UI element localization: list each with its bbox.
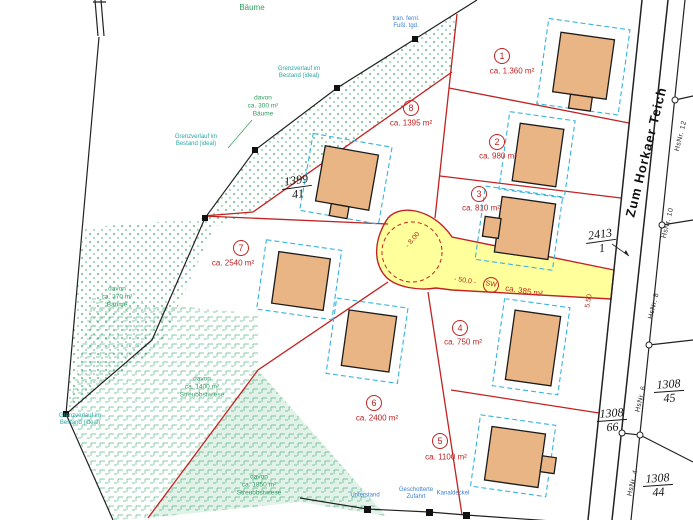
parcel-7-area: ca. 2540 m²: [212, 259, 254, 268]
parcel-2-badge: 2: [489, 134, 505, 150]
house-parcel-7: [257, 240, 342, 320]
trees-area-label-300: davonca. 300 m²Bäume: [248, 94, 279, 117]
building: [341, 310, 396, 372]
parcel-2-area: ca. 980 m²: [479, 152, 517, 161]
survey-note-top: tran. fernl.Fußl. tgd.: [392, 16, 419, 30]
flurstueck-1399-41: 1399 41: [280, 172, 313, 202]
fence-symbol: [93, 0, 106, 36]
building-annex: [569, 94, 593, 111]
gravel-access-label: GeschotterteZufahrt: [399, 487, 433, 501]
boundary-note-2: Grenzverlauf imBestand (ideal): [175, 134, 217, 148]
parcel-4-area: ca. 750 m²: [444, 338, 482, 347]
flurstueck-denominator: 45: [654, 390, 685, 405]
street-edge-right: [612, 0, 668, 520]
house-parcel-6: [326, 298, 408, 383]
flurstueck-denominator: 66: [597, 419, 628, 434]
neighbor-branch-3: [649, 340, 693, 345]
parcel-5-area: ca. 1100 m²: [425, 453, 467, 462]
boundary-point: [637, 432, 643, 438]
trees-label-top: Bäume: [239, 3, 264, 13]
building: [553, 32, 615, 99]
parcel-6-badge: 6: [366, 395, 382, 411]
building-annex: [482, 216, 501, 238]
boundary-marker: [252, 147, 258, 153]
building: [512, 123, 564, 187]
house-parcel-1: [537, 18, 630, 115]
flurstueck-2413-1: 2413 1: [584, 226, 617, 256]
boundary-marker: [364, 506, 371, 513]
boundary-marker: [334, 85, 340, 91]
boundary-note-1: Grenzverlauf imBestand (ideal): [278, 66, 320, 80]
building: [505, 310, 560, 386]
orchard-label-1850: davonca. 1850 m²Streuobstwiese: [237, 473, 281, 496]
neighbor-boundary-line: [631, 0, 685, 520]
parcel-1-badge: 1: [494, 48, 510, 64]
flurstueck-denominator: 44: [643, 484, 674, 499]
site-plan: 1 ca. 1.360 m² 2 ca. 980 m² 3 ca. 810 m²…: [0, 0, 693, 520]
parcel-6-area: ca. 2400 m²: [356, 414, 398, 423]
house-parcel-4: [492, 299, 570, 395]
flurstueck-1308-44: 1308 44: [642, 471, 674, 499]
building: [316, 146, 379, 211]
parcel-4-badge: 4: [452, 320, 468, 336]
parcel-8-area: ca. 1395 m²: [390, 119, 432, 128]
boundary-point: [646, 342, 652, 348]
leader-trees-300: [228, 120, 252, 148]
parcel-3-area: ca. 810 m²: [462, 204, 500, 213]
parcel-8-badge: 8: [403, 100, 419, 116]
building-annex: [329, 204, 349, 219]
trees-area-label-370: davonca. 370 m²Bäume: [102, 285, 133, 308]
parcel-3-badge: 3: [471, 186, 487, 202]
boundary-note-3: Grenzverlauf imBestand (ideal): [59, 413, 101, 427]
neighbor-branch-4: [640, 435, 693, 462]
building: [494, 197, 555, 260]
boundary-marker: [426, 509, 433, 516]
orchard-label-1400: davonca. 1400 m²Streuobstwiese: [180, 375, 224, 398]
boundary-marker: [463, 512, 470, 519]
parcel-5-badge: 5: [432, 433, 448, 449]
boundary-marker: [202, 215, 208, 221]
leader-2413-arrow: [624, 250, 629, 256]
shelter-label: Unterstand: [350, 492, 379, 499]
house-parcel-5: [471, 415, 561, 498]
boundary-marker: [412, 36, 418, 42]
building: [485, 427, 546, 488]
building: [272, 252, 331, 311]
parcel-boundary-4-5: [451, 390, 599, 413]
building-annex: [540, 456, 556, 474]
parcel-1-area: ca. 1.360 m²: [490, 67, 534, 76]
boundary-point: [672, 97, 678, 103]
flurstueck-1308-66: 1308 66: [596, 406, 628, 434]
plan-drawing: [0, 0, 693, 520]
parcel-7-badge: 7: [233, 240, 249, 256]
flurstueck-1308-45: 1308 45: [653, 377, 685, 405]
manhole-label: Kanaldeckel: [437, 490, 470, 497]
